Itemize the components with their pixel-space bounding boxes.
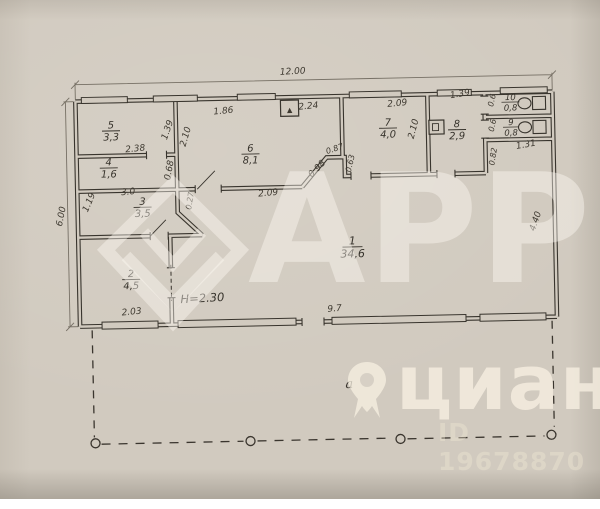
window xyxy=(349,91,401,98)
dim-niche-width: 1.31 xyxy=(515,139,537,152)
dim-room8-width: 1.39 xyxy=(449,88,471,101)
room-3-number: 3 xyxy=(139,197,146,208)
window xyxy=(153,95,197,102)
porch-dashed-left xyxy=(92,330,94,437)
room-7-area: 4,0 xyxy=(380,129,396,140)
annex-label: а xyxy=(345,377,353,392)
room-10-area: 0,8 xyxy=(504,103,518,113)
room-label-1: 1 34,6 xyxy=(340,234,365,261)
room-4-area: 1,6 xyxy=(101,169,117,180)
dim-right-height: 4.40 xyxy=(528,210,544,232)
room-label-5: 5 3,3 xyxy=(102,120,120,143)
window xyxy=(237,93,275,100)
meter-box-inner xyxy=(432,124,438,131)
room-label-9: 9 0,8 xyxy=(503,118,519,139)
dim-left-height: 6.00 xyxy=(55,206,69,228)
dim-hall-width: 2.10 xyxy=(179,126,194,148)
floor-plan-drawing: ▲ а 5 xyxy=(0,0,600,505)
room-6-area: 8,1 xyxy=(243,155,259,166)
door-leaf xyxy=(150,220,166,236)
room-2-number: 2 xyxy=(128,269,135,280)
dim-wc10-depth: 0.6 xyxy=(486,93,498,107)
room-5-number: 5 xyxy=(108,120,115,131)
dim-hall-224: 2.24 xyxy=(298,101,319,113)
room-9-number: 9 xyxy=(508,118,514,128)
window xyxy=(81,97,127,104)
room-labels: 5 3,3 4 1,6 3 3,5 2 4,5 xyxy=(98,93,523,293)
vent-shaft-icon: ▲ xyxy=(287,106,293,114)
porch-dashed-right xyxy=(552,321,554,427)
porch-post xyxy=(246,436,255,445)
dim-room7-depth: 2.10 xyxy=(407,118,422,140)
room-2-area: 4,5 xyxy=(123,281,139,292)
room-4-number: 4 xyxy=(105,157,112,168)
window xyxy=(480,313,546,321)
room-9-area: 0,8 xyxy=(504,128,518,138)
room-label-10: 10 0,8 xyxy=(501,93,519,114)
room-label-3: 3 3,5 xyxy=(133,197,151,220)
room-1-area: 34,6 xyxy=(340,247,365,261)
porch-post xyxy=(91,439,100,448)
scanned-floor-plan-photo: ▲ а 5 xyxy=(0,0,600,499)
porch-post xyxy=(547,430,556,439)
toilet-icon xyxy=(518,122,531,133)
room-3-area: 3,5 xyxy=(135,209,151,220)
door-opening-dashed xyxy=(171,265,172,301)
toilet-tank-icon xyxy=(533,120,546,133)
room-label-2: 2 4,5 xyxy=(122,269,140,292)
dim-room5-width: 2.38 xyxy=(125,144,146,156)
porch-dashed-bottom xyxy=(102,435,545,445)
window xyxy=(102,321,158,329)
room-8-number: 8 xyxy=(454,119,461,130)
dim-bottom-main: 9.7 xyxy=(327,304,342,315)
windows xyxy=(81,87,552,330)
dim-niche-depth: 0.82 xyxy=(487,147,499,166)
toilet-icon xyxy=(518,98,531,109)
room-8-area: 2,9 xyxy=(449,131,465,142)
dim-room7-width: 2.09 xyxy=(387,98,408,110)
dim-wc9-depth: 0.6 xyxy=(487,118,499,132)
dim-stub: 0.27 xyxy=(184,190,196,210)
toilet-tank-icon xyxy=(532,96,545,109)
room-6-number: 6 xyxy=(247,143,254,154)
dim-room4-depth: 0.68 xyxy=(163,159,177,181)
porch-post xyxy=(396,434,405,443)
dim-hall-186: 1.86 xyxy=(213,106,234,118)
ceiling-height-note: Н=2.30 xyxy=(180,290,225,306)
room-label-6: 6 8,1 xyxy=(241,143,259,166)
dim-overall-width: 12.00 xyxy=(280,66,307,77)
window xyxy=(332,315,466,325)
room-1-number: 1 xyxy=(349,234,356,247)
room-label-7: 7 4,0 xyxy=(379,117,397,140)
dim-room3-width: 3.0 xyxy=(121,187,136,198)
dim-bottom-left: 2.03 xyxy=(121,307,142,319)
room-label-8: 8 2,9 xyxy=(448,119,466,142)
window xyxy=(178,318,296,327)
dim-hall-bottom: 2.09 xyxy=(258,188,279,200)
room-5-area: 3,3 xyxy=(103,132,119,143)
room-7-number: 7 xyxy=(385,118,392,129)
dim-room3-depth: 1.19 xyxy=(81,191,98,214)
floor-plan: ▲ а 5 xyxy=(0,0,600,505)
room-label-4: 4 1,6 xyxy=(100,157,118,180)
porch-outline xyxy=(89,321,556,450)
door-leaf xyxy=(197,171,215,189)
